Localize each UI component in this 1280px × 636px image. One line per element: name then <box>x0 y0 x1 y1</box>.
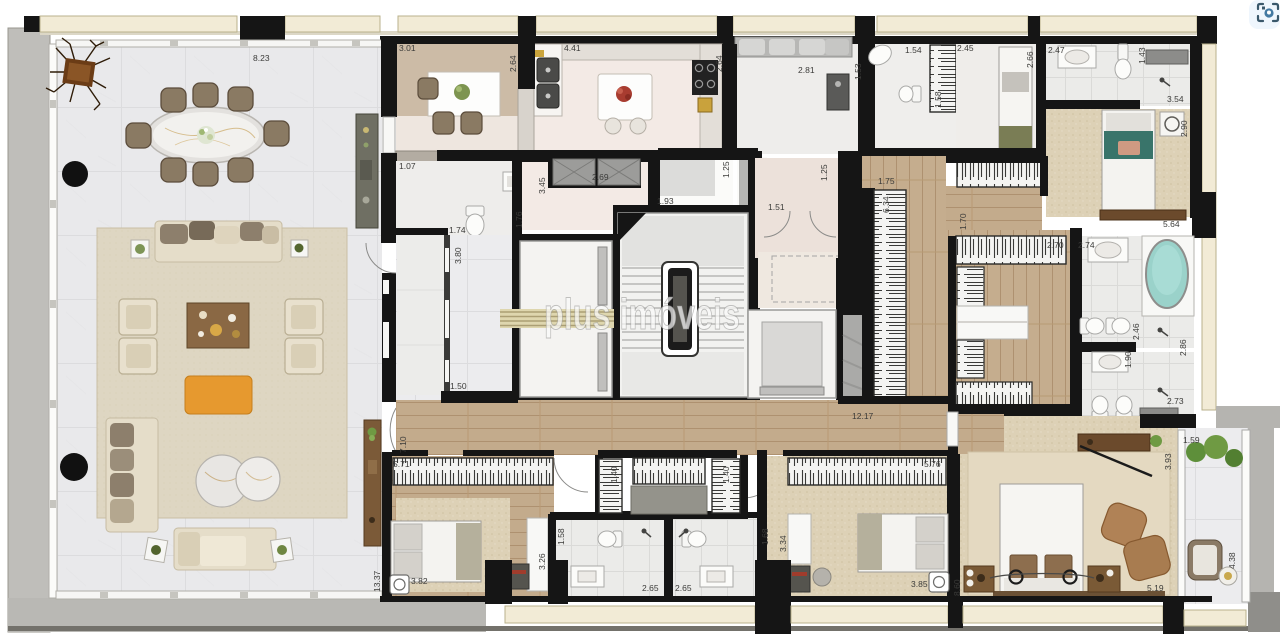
svg-text:3.01: 3.01 <box>399 43 416 53</box>
svg-text:3.85: 3.85 <box>911 579 928 589</box>
svg-text:2.45: 2.45 <box>957 43 974 53</box>
svg-text:plus imóveis: plus imóveis <box>544 290 740 339</box>
svg-text:2.90: 2.90 <box>1179 120 1189 137</box>
svg-text:1.54: 1.54 <box>905 45 922 55</box>
svg-text:1.59: 1.59 <box>1183 435 1200 445</box>
svg-text:1.50: 1.50 <box>450 381 467 391</box>
svg-text:2.69: 2.69 <box>592 172 609 182</box>
svg-text:1.90: 1.90 <box>1123 351 1133 368</box>
svg-text:1.07: 1.07 <box>399 161 416 171</box>
svg-text:1.76: 1.76 <box>514 211 524 228</box>
svg-text:2.70: 2.70 <box>1047 240 1064 250</box>
svg-text:2.73: 2.73 <box>1167 396 1184 406</box>
svg-text:7.10: 7.10 <box>398 436 408 453</box>
svg-text:2.81: 2.81 <box>798 65 815 75</box>
svg-text:1.40: 1.40 <box>609 466 619 483</box>
svg-text:1.25: 1.25 <box>721 161 731 178</box>
svg-text:1.68: 1.68 <box>760 528 770 545</box>
svg-text:3.45: 3.45 <box>537 177 547 194</box>
svg-text:1.51: 1.51 <box>768 202 785 212</box>
svg-text:1.75: 1.75 <box>878 176 895 186</box>
svg-text:2.66: 2.66 <box>1025 51 1035 68</box>
svg-text:4.38: 4.38 <box>1227 552 1237 569</box>
svg-text:1.93: 1.93 <box>657 196 674 206</box>
svg-text:4.41: 4.41 <box>564 43 581 53</box>
svg-text:1.74: 1.74 <box>449 225 466 235</box>
svg-text:1.43: 1.43 <box>1137 47 1147 64</box>
svg-text:3.34: 3.34 <box>778 535 788 552</box>
svg-text:1.58: 1.58 <box>933 91 943 108</box>
svg-text:2.64: 2.64 <box>508 55 518 72</box>
svg-text:1.40: 1.40 <box>721 466 731 483</box>
svg-text:2.65: 2.65 <box>642 583 659 593</box>
svg-text:2.74: 2.74 <box>1078 240 1095 250</box>
svg-text:1.58: 1.58 <box>556 528 566 545</box>
svg-text:2.64: 2.64 <box>714 55 724 72</box>
svg-text:1.53: 1.53 <box>853 63 863 80</box>
svg-text:2.46: 2.46 <box>1131 323 1141 340</box>
svg-text:3.93: 3.93 <box>1163 453 1173 470</box>
svg-text:5.71: 5.71 <box>393 459 410 469</box>
svg-text:1.70: 1.70 <box>958 213 968 230</box>
svg-text:1.25: 1.25 <box>819 164 829 181</box>
svg-text:5.64: 5.64 <box>1163 219 1180 229</box>
svg-text:2.65: 2.65 <box>675 583 692 593</box>
svg-text:2.47: 2.47 <box>1048 45 1065 55</box>
svg-text:3.54: 3.54 <box>1167 94 1184 104</box>
svg-text:13.37: 13.37 <box>372 570 382 592</box>
svg-text:3.82: 3.82 <box>411 576 428 586</box>
svg-text:5.76: 5.76 <box>924 459 941 469</box>
svg-text:8.60: 8.60 <box>952 579 962 596</box>
svg-text:12.17: 12.17 <box>852 411 874 421</box>
svg-text:8.23: 8.23 <box>253 53 270 63</box>
svg-text:5.19: 5.19 <box>1147 583 1164 593</box>
svg-text:6.34: 6.34 <box>881 196 891 213</box>
svg-text:3.80: 3.80 <box>453 247 463 264</box>
svg-text:2.86: 2.86 <box>1178 339 1188 356</box>
svg-text:3.26: 3.26 <box>537 553 547 570</box>
